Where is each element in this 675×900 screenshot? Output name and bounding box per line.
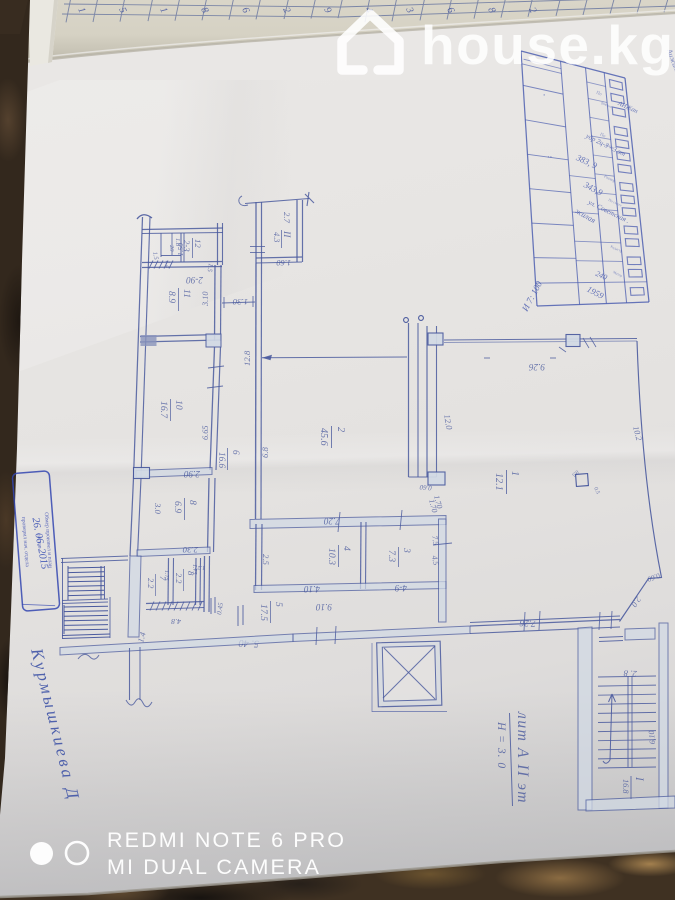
svg-text:9.26: 9.26 — [529, 362, 545, 372]
svg-text:2-90: 2-90 — [186, 275, 203, 285]
svg-text:2.7: 2.7 — [282, 212, 292, 224]
svg-text:6.9: 6.9 — [172, 501, 183, 513]
svg-text:Н = 3. 0: Н = 3. 0 — [495, 721, 507, 769]
svg-text:1.5: 1.5 — [205, 263, 213, 273]
svg-text:4.5: 4.5 — [430, 555, 441, 566]
svg-text:9.10: 9.10 — [316, 602, 332, 612]
svg-text:343,9: 343,9 — [581, 179, 604, 198]
svg-text:Матер: Матер — [612, 270, 623, 278]
svg-text:По смете: По смете — [608, 198, 623, 208]
svg-text:REDMI NOTE 6 PRO: REDMI NOTE 6 PRO — [107, 828, 344, 852]
svg-text:12.8: 12.8 — [242, 350, 252, 366]
svg-text:I: I — [633, 776, 645, 782]
svg-text:1.60: 1.60 — [276, 258, 291, 267]
svg-text:3.0: 3.0 — [153, 502, 163, 515]
svg-text:7.20: 7.20 — [324, 516, 340, 526]
svg-text:3: 3 — [401, 547, 412, 553]
svg-text:жилая: жилая — [574, 206, 598, 225]
svg-text:3.10: 3.10 — [201, 291, 210, 307]
svg-text:1.8: 1.8 — [174, 238, 181, 247]
svg-text:7.3: 7.3 — [386, 550, 397, 562]
svg-text:12: 12 — [193, 239, 203, 248]
svg-text:7.5: 7.5 — [430, 535, 441, 546]
svg-text:6: 6 — [231, 450, 241, 455]
svg-text:проверил нач. отдела: проверил нач. отдела — [20, 517, 30, 568]
svg-text:1.5: 1.5 — [151, 251, 159, 261]
svg-text:6.8: 6.8 — [260, 446, 270, 458]
svg-text:2.90: 2.90 — [184, 469, 200, 479]
svg-text:1.27: 1.27 — [194, 564, 205, 570]
svg-text:2. 8: 2. 8 — [623, 668, 637, 679]
svg-text:10.3: 10.3 — [326, 548, 337, 565]
svg-text:фактич: фактич — [601, 101, 613, 109]
svg-text:··: ·· — [547, 153, 553, 164]
svg-text:MI DUAL CAMERA: MI DUAL CAMERA — [107, 855, 320, 879]
svg-text:2.2: 2.2 — [174, 573, 183, 583]
svg-text:4.10: 4.10 — [304, 584, 320, 594]
svg-text:2: 2 — [335, 427, 346, 432]
svg-text:0.45: 0.45 — [216, 602, 225, 616]
svg-text:4-9: 4-9 — [394, 583, 407, 593]
svg-text:8: 8 — [187, 500, 198, 505]
svg-text:17.5: 17.5 — [258, 604, 269, 621]
svg-text:0.5: 0.5 — [592, 486, 600, 495]
svg-text:12.1: 12.1 — [493, 473, 504, 491]
svg-text:2.2: 2.2 — [146, 578, 155, 588]
svg-text:1: 1 — [509, 471, 520, 476]
svg-text:20: 20 — [168, 245, 175, 252]
svg-text:10: 10 — [173, 400, 184, 410]
svg-text:Курмышкиева Д: Курмышкиева Д — [27, 645, 84, 803]
svg-text:240: 240 — [594, 269, 609, 282]
svg-text:И 7: 100: И 7: 100 — [519, 279, 544, 314]
svg-text:5: 5 — [273, 602, 284, 607]
svg-text:16.8: 16.8 — [621, 779, 630, 794]
svg-text:6.65: 6.65 — [201, 426, 210, 440]
svg-text:6.10: 6.10 — [647, 730, 657, 744]
svg-text:12.0: 12.0 — [442, 414, 455, 431]
svg-text:0.5: 0.5 — [570, 468, 579, 477]
svg-text:8.9: 8.9 — [166, 291, 177, 303]
svg-text:16.6: 16.6 — [217, 452, 227, 468]
svg-text:16.7: 16.7 — [158, 401, 169, 419]
svg-text:лит А II эт: лит А II эт — [514, 711, 531, 804]
svg-text:4: 4 — [341, 546, 352, 551]
svg-text:4.8: 4.8 — [171, 617, 181, 626]
svg-text:4.3: 4.3 — [272, 232, 281, 242]
svg-text:2.30: 2.30 — [182, 545, 198, 555]
svg-text:2.0: 2.0 — [629, 595, 643, 609]
svg-text:11: 11 — [181, 289, 192, 298]
svg-text:45.6: 45.6 — [318, 428, 329, 446]
svg-text:1.30: 1.30 — [232, 297, 248, 307]
svg-text:1.75: 1.75 — [163, 570, 169, 580]
svg-text:0.60: 0.60 — [419, 483, 432, 491]
svg-text:1959: 1959 — [585, 284, 606, 301]
svg-text:house.kg: house.kg — [421, 14, 672, 76]
svg-text:0.60: 0.60 — [646, 571, 661, 584]
svg-text:1.4: 1.4 — [136, 631, 147, 643]
svg-text:II: II — [281, 230, 292, 238]
svg-text:2.5: 2.5 — [261, 554, 271, 566]
svg-text:383, 9: 383, 9 — [574, 152, 599, 171]
